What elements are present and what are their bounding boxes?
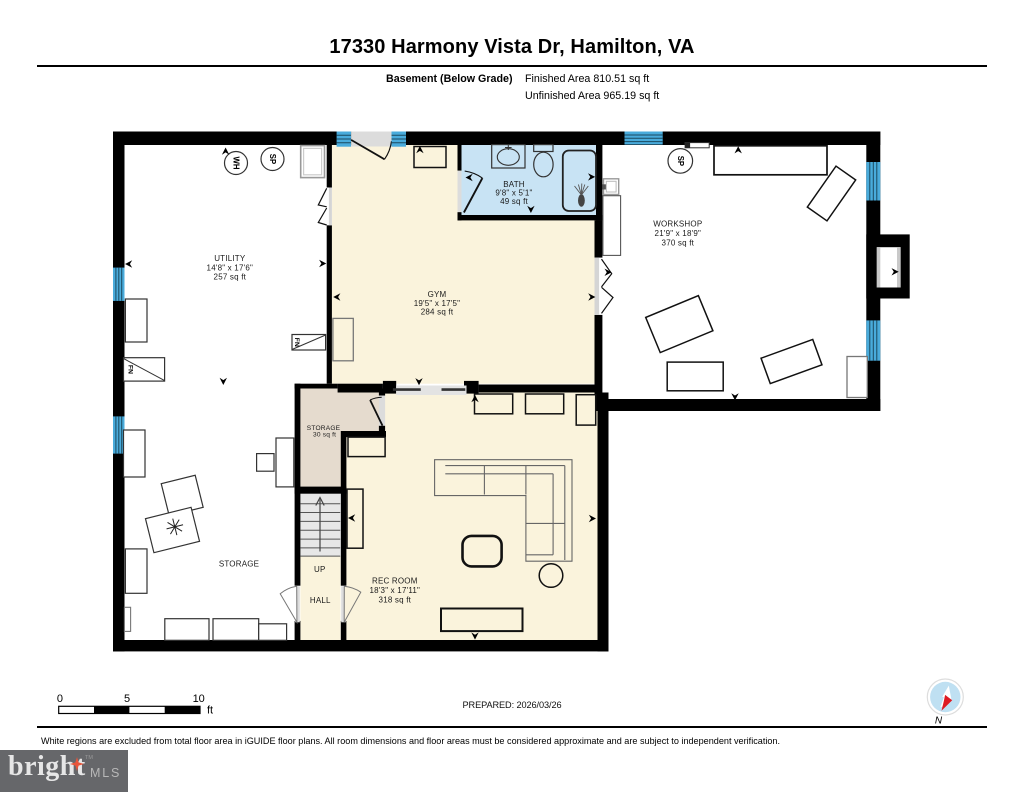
svg-text:284 sq ft: 284 sq ft — [421, 308, 454, 317]
svg-text:UP: UP — [314, 565, 326, 574]
svg-text:SP: SP — [676, 156, 685, 166]
svg-text:STORAGE: STORAGE — [219, 560, 259, 569]
svg-text:19'5" x 17'5": 19'5" x 17'5" — [414, 299, 460, 308]
svg-text:UTILITY: UTILITY — [214, 254, 246, 263]
svg-text:GYM: GYM — [428, 290, 447, 299]
svg-text:SP: SP — [268, 154, 277, 164]
svg-text:14'8" x 17'6": 14'8" x 17'6" — [207, 263, 253, 272]
svg-text:18'3" x 17'11": 18'3" x 17'11" — [370, 586, 421, 595]
svg-text:FN: FN — [127, 365, 134, 374]
svg-text:WORKSHOP: WORKSHOP — [653, 219, 702, 228]
svg-text:HALL: HALL — [310, 596, 331, 605]
svg-text:257 sq ft: 257 sq ft — [214, 272, 247, 281]
svg-text:318 sq ft: 318 sq ft — [379, 596, 412, 605]
svg-text:21'9" x 18'9": 21'9" x 18'9" — [655, 229, 701, 238]
svg-text:N: N — [935, 716, 943, 727]
svg-text:49 sq ft: 49 sq ft — [500, 197, 528, 206]
svg-text:FN: FN — [293, 338, 300, 347]
svg-text:30 sq ft: 30 sq ft — [313, 432, 336, 439]
svg-text:370 sq ft: 370 sq ft — [662, 238, 695, 247]
svg-text:REC ROOM: REC ROOM — [372, 577, 418, 586]
svg-text:WH: WH — [232, 157, 241, 170]
